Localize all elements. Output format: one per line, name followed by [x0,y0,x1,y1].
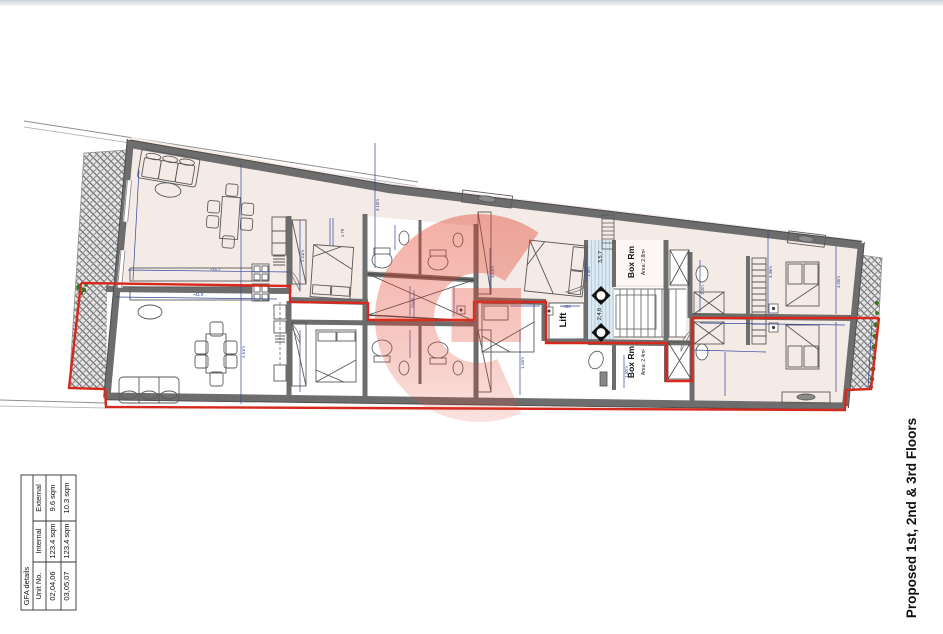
svg-text:Box Rm: Box Rm [626,246,636,279]
svg-text:1.5m: 1.5m [586,267,591,277]
svg-text:External: External [34,484,43,512]
svg-text:2.21m: 2.21m [300,250,305,262]
svg-text:1.44m: 1.44m [520,357,525,369]
svg-text:2,4,6: 2,4,6 [597,308,603,320]
svg-text:4.61m: 4.61m [241,346,246,358]
svg-text:Unit No.: Unit No. [34,572,43,599]
svg-text:10.3 sqm: 10.3 sqm [62,483,71,514]
svg-text:3.36m: 3.36m [768,266,773,278]
svg-text:Lift: Lift [558,312,569,328]
svg-text:Area: 2.4m²: Area: 2.4m² [641,349,647,375]
svg-text:2.2m: 2.2m [700,285,705,295]
svg-text:3.10m: 3.10m [375,199,380,211]
svg-text:123.4 sqm: 123.4 sqm [48,523,57,558]
svg-text:4.05m: 4.05m [836,276,841,288]
svg-text:9.6 sqm: 9.6 sqm [48,485,57,512]
svg-text:~41.9: ~41.9 [193,292,204,297]
svg-text:Proposed 1st, 2nd & 3rd Floors: Proposed 1st, 2nd & 3rd Floors [904,418,919,618]
svg-text:~455: ~455 [561,304,571,309]
svg-text:Internal: Internal [34,528,43,553]
svg-text:1.79: 1.79 [340,228,345,237]
svg-text:03,05,07: 03,05,07 [62,571,71,600]
svg-text:~15.7: ~15.7 [210,267,221,272]
svg-text:3,5,7: 3,5,7 [598,251,604,263]
svg-text:Area: 2.8m²: Area: 2.8m² [641,249,647,275]
svg-text:Box Rm: Box Rm [626,346,636,379]
svg-text:GFA details: GFA details [22,567,31,606]
svg-text:123.4 sqm: 123.4 sqm [62,523,71,558]
svg-text:02,04,06: 02,04,06 [48,571,57,600]
